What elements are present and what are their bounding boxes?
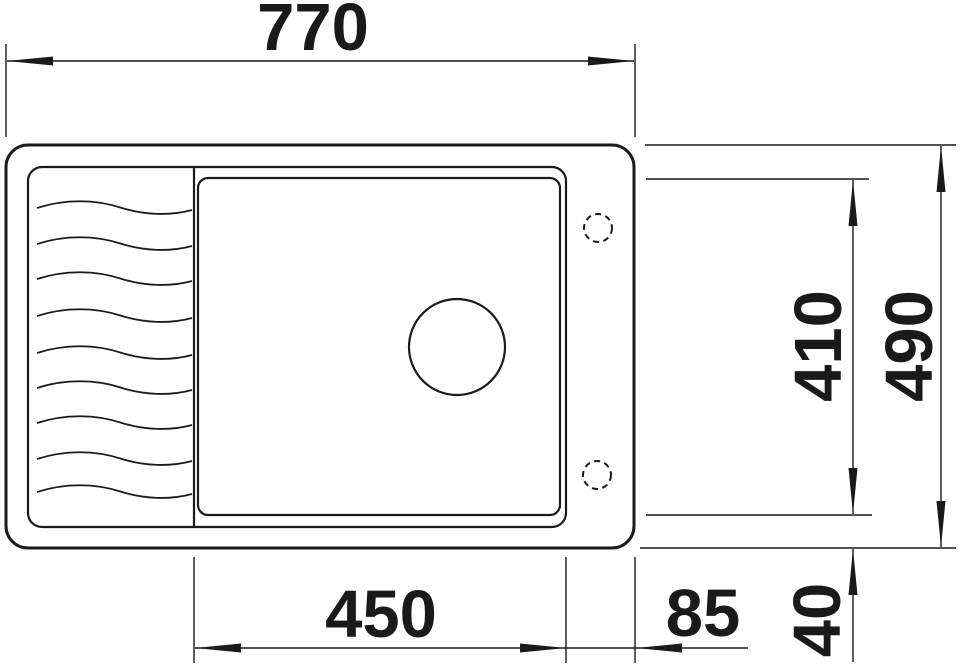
drawing-canvas: 770 490 410 40 450 85 [0, 0, 960, 668]
tap-hole-bottom [583, 461, 611, 489]
dim-label-bottom-ledge: 40 [780, 583, 855, 658]
arrowhead-down [937, 501, 946, 547]
wave-line [37, 346, 192, 359]
arrowhead-left [195, 644, 241, 653]
arrowhead-right [588, 57, 634, 66]
sink-dimension-drawing: 770 490 410 40 450 85 [0, 0, 960, 668]
dim-overall-width: 770 [6, 0, 635, 137]
dim-label-bowl-width: 450 [325, 577, 437, 652]
dim-label-overall-depth: 490 [872, 290, 947, 402]
drain-hole [409, 299, 505, 395]
wave-line [37, 416, 192, 429]
wave-line [37, 452, 192, 465]
wave-line [37, 381, 192, 394]
arrowhead-left [7, 57, 53, 66]
tap-hole-top [584, 214, 612, 242]
wave-line [37, 485, 192, 498]
dim-bowl-width: 450 85 [194, 557, 748, 663]
arrowhead-down [849, 468, 858, 514]
wave-line [37, 201, 192, 214]
wave-line [37, 309, 192, 322]
dim-bowl-depth: 410 [646, 179, 872, 515]
wave-line [37, 272, 192, 285]
arrowhead-up [937, 146, 946, 192]
drainboard-waves [37, 201, 192, 498]
arrowhead-right [520, 644, 566, 653]
dim-bottom-ledge: 40 [780, 549, 857, 662]
wave-line [37, 237, 192, 250]
dim-label-bowl-depth: 410 [781, 290, 856, 402]
rim-outline [28, 167, 566, 527]
dim-label-right-ledge: 85 [666, 576, 741, 651]
dim-label-overall-width: 770 [257, 0, 369, 65]
arrowhead-up [849, 180, 858, 226]
